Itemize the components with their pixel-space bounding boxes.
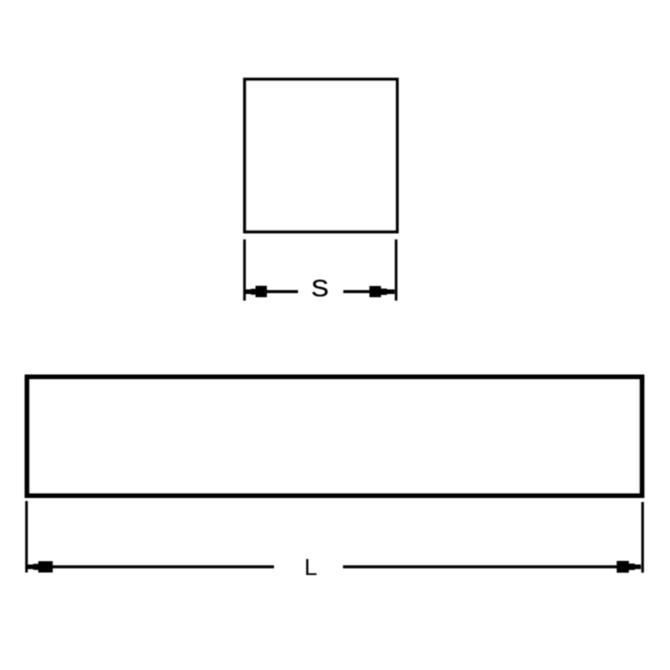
- svg-text:L: L: [304, 554, 317, 580]
- svg-text:S: S: [311, 276, 329, 302]
